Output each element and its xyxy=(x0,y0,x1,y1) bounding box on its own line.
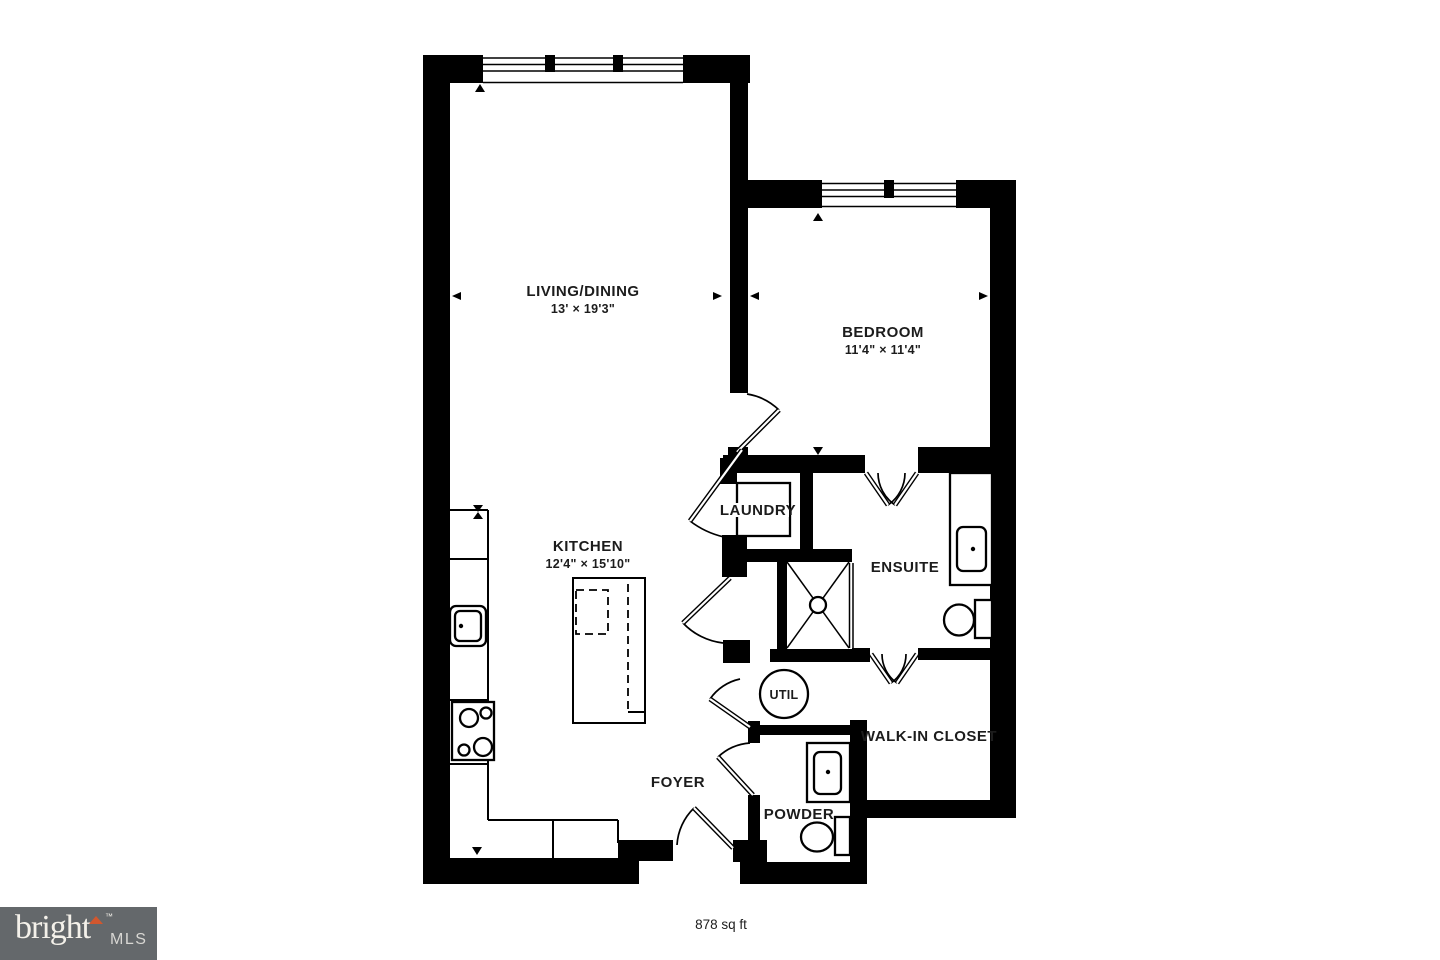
floor-plan: LIVING/DINING 13' × 19'3" BEDROOM 11'4" … xyxy=(0,0,1440,960)
shower-hall-door xyxy=(683,578,730,643)
powder-door xyxy=(718,743,753,795)
util-label: UTIL xyxy=(770,688,799,702)
total-area-label: 878 sq ft xyxy=(695,917,747,932)
kitchen-dims: 12'4" × 15'10" xyxy=(546,557,631,571)
kitchen-island xyxy=(573,578,645,723)
arrow-up-icon xyxy=(813,213,823,221)
arrow-down-icon xyxy=(472,847,482,855)
kitchen-sink xyxy=(450,606,486,646)
arrow-up-icon xyxy=(475,84,485,92)
arrow-up-icon xyxy=(473,512,483,519)
living-room-dims: 13' × 19'3" xyxy=(551,302,615,316)
living-window xyxy=(483,55,683,83)
bedroom-label: BEDROOM xyxy=(842,324,924,341)
bedroom-dims: 11'4" × 11'4" xyxy=(845,343,921,357)
util-door xyxy=(710,679,750,727)
ensuite-toilet xyxy=(944,600,992,638)
window-mullion xyxy=(884,180,894,198)
window-mullion xyxy=(613,55,623,72)
laundry-hall-door xyxy=(690,450,742,537)
brightmls-logo: bright ™ MLS xyxy=(0,907,157,960)
shower xyxy=(787,562,853,648)
living-room-label: LIVING/DINING xyxy=(526,283,639,300)
arrow-down-icon xyxy=(813,447,823,455)
arrow-right-icon xyxy=(713,292,722,300)
bedroom-door xyxy=(737,394,779,452)
floor-plan-svg: LIVING/DINING 13' × 19'3" BEDROOM 11'4" … xyxy=(0,0,1440,960)
ensuite-double-door xyxy=(866,473,917,505)
logo-trademark: ™ xyxy=(105,912,113,921)
arrow-right-icon xyxy=(979,292,988,300)
ensuite-vanity xyxy=(950,473,992,585)
foyer-label: FOYER xyxy=(651,774,705,791)
powder-vanity xyxy=(807,743,850,802)
bedroom-window xyxy=(820,180,958,208)
ensuite-label: ENSUITE xyxy=(871,559,940,576)
stove xyxy=(452,702,494,760)
entry-door xyxy=(677,808,733,848)
logo-brand-text: bright xyxy=(15,909,90,947)
arrow-left-icon xyxy=(452,292,461,300)
closet-double-door xyxy=(871,654,917,683)
laundry-label: LAUNDRY xyxy=(720,502,796,519)
kitchen-label: KITCHEN xyxy=(553,538,623,555)
powder-label: POWDER xyxy=(764,806,835,823)
arrow-left-icon xyxy=(750,292,759,300)
window-mullion xyxy=(545,55,555,72)
walk-in-closet-label: WALK-IN CLOSET xyxy=(861,728,997,745)
logo-suffix-text: MLS xyxy=(110,931,147,949)
logo-triangle-icon xyxy=(89,916,103,924)
